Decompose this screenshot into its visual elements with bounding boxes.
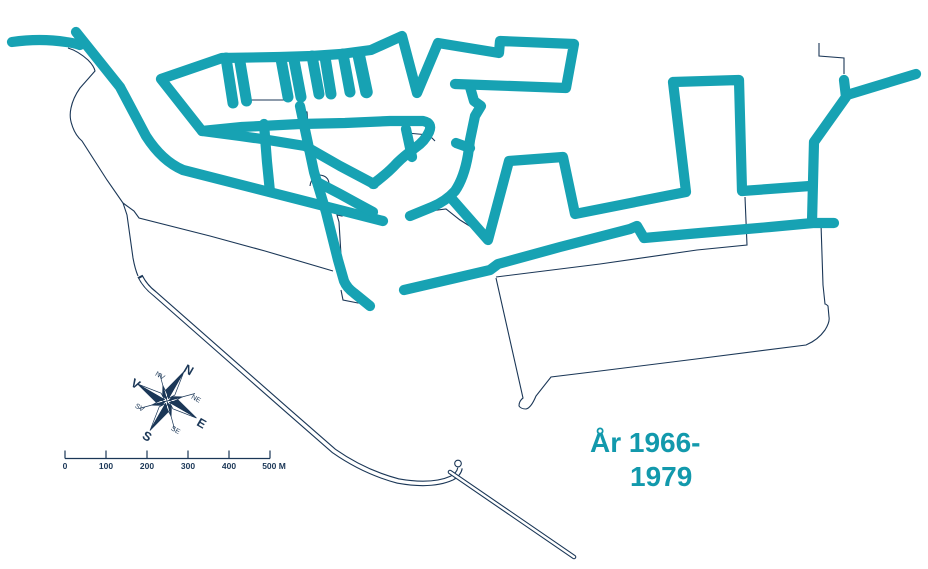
svg-text:V: V <box>128 376 143 393</box>
svg-text:NE: NE <box>190 394 202 405</box>
svg-text:400: 400 <box>222 461 236 471</box>
svg-text:200: 200 <box>140 461 154 471</box>
svg-text:NV: NV <box>154 371 166 382</box>
svg-text:N: N <box>181 362 196 379</box>
svg-text:300: 300 <box>181 461 195 471</box>
svg-text:S: S <box>140 428 154 444</box>
svg-text:SE: SE <box>169 425 181 436</box>
svg-text:SV: SV <box>133 403 145 414</box>
svg-text:100: 100 <box>99 461 113 471</box>
svg-text:500 M: 500 M <box>262 461 286 471</box>
svg-text:0: 0 <box>63 461 68 471</box>
